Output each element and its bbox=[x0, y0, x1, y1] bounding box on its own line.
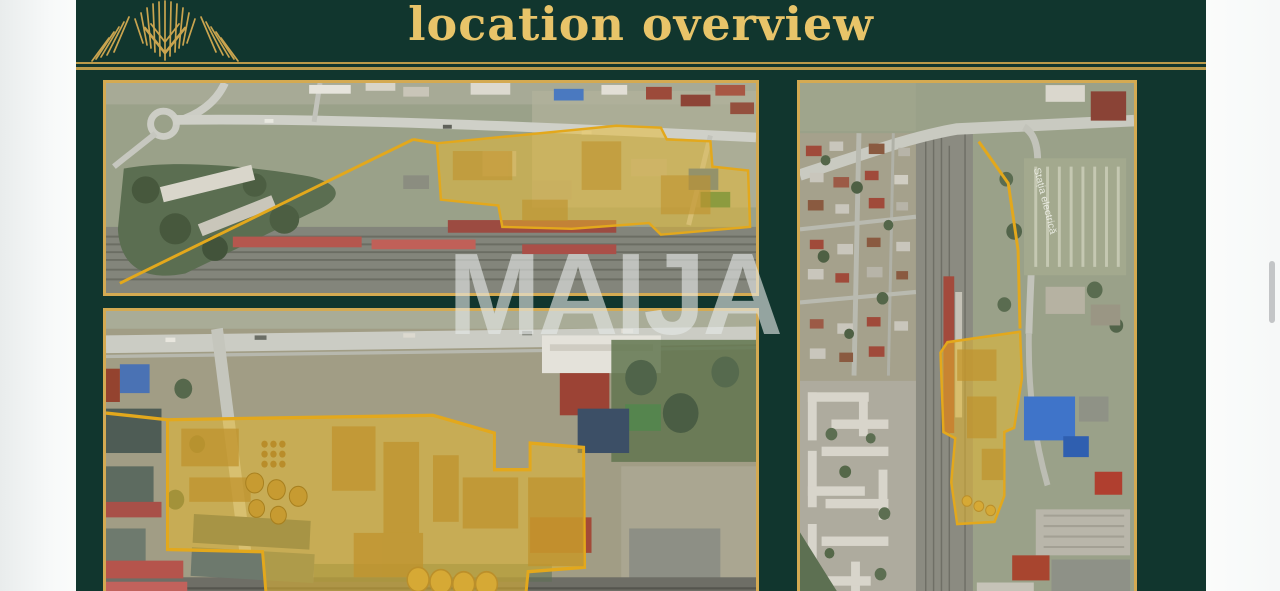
satellite-map-site-closeup bbox=[103, 308, 759, 591]
header-divider bbox=[76, 62, 1206, 70]
slide: location overview bbox=[76, 0, 1206, 591]
scrollbar-thumb[interactable] bbox=[1269, 261, 1275, 323]
page-title: location overview bbox=[76, 0, 1206, 54]
satellite-map-site-north bbox=[103, 80, 759, 296]
photo-viewer-background: location overview bbox=[0, 0, 1280, 591]
satellite-map-district: Stația electrică bbox=[797, 80, 1137, 591]
